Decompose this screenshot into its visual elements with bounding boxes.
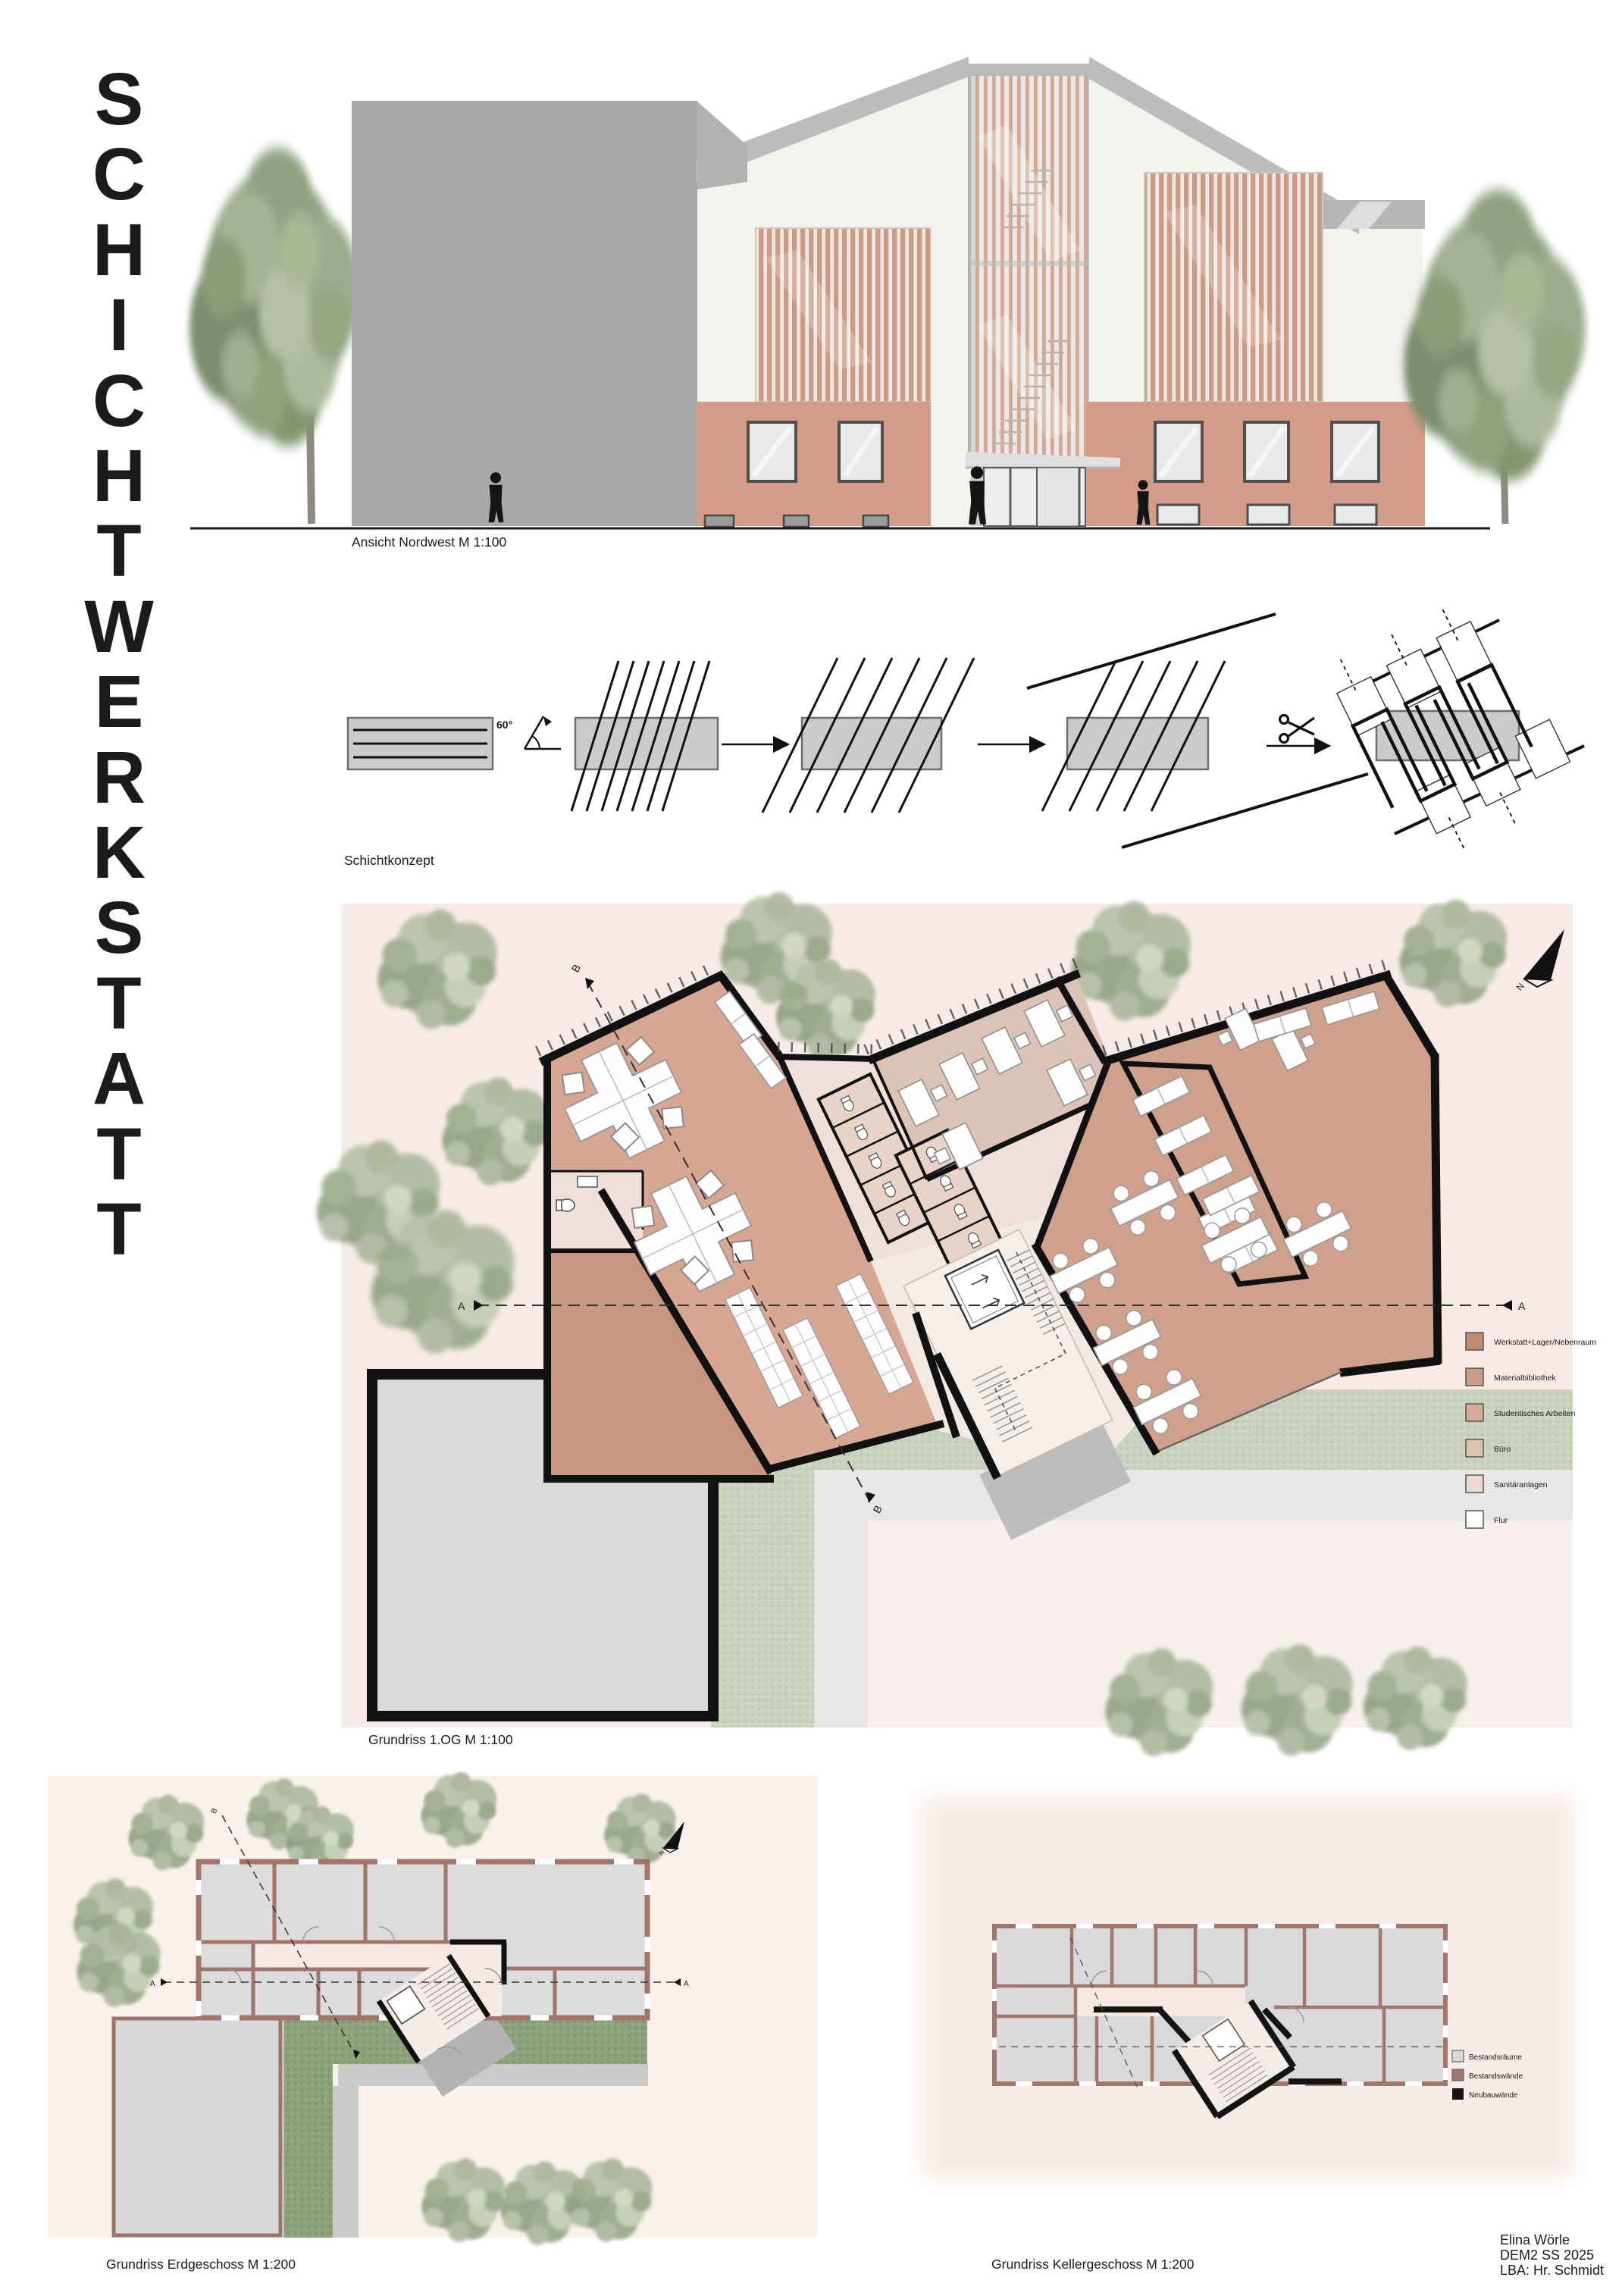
svg-text:H: H <box>92 208 146 291</box>
svg-text:C: C <box>92 133 146 215</box>
svg-text:A: A <box>684 1980 689 1988</box>
svg-text:A: A <box>1518 1300 1526 1312</box>
svg-text:A: A <box>458 1300 465 1312</box>
svg-text:K: K <box>92 811 146 894</box>
svg-text:Grundriss 1.OG M 1:100: Grundriss 1.OG M 1:100 <box>368 1732 513 1747</box>
svg-text:T: T <box>96 962 141 1045</box>
svg-text:LBA: Hr. Schmidt: LBA: Hr. Schmidt <box>1500 2263 1604 2278</box>
svg-text:Bestandswände: Bestandswände <box>1469 2072 1523 2081</box>
svg-text:Werkstatt+Lager/Nebenraum: Werkstatt+Lager/Nebenraum <box>1494 1338 1596 1347</box>
svg-text:E: E <box>95 660 144 743</box>
svg-text:W: W <box>84 585 154 668</box>
svg-text:Elina Wörle: Elina Wörle <box>1500 2232 1570 2247</box>
svg-text:Grundriss Erdgeschoss M 1:200: Grundriss Erdgeschoss M 1:200 <box>106 2257 296 2272</box>
svg-text:S: S <box>95 886 144 969</box>
svg-text:60°: 60° <box>496 719 512 731</box>
svg-text:Ansicht Nordwest M 1:100: Ansicht Nordwest M 1:100 <box>352 534 507 550</box>
svg-text:Büro: Büro <box>1494 1445 1511 1454</box>
svg-text:A: A <box>150 1980 155 1988</box>
svg-text:R: R <box>92 736 146 819</box>
svg-text:Studentisches Arbeiten: Studentisches Arbeiten <box>1494 1409 1576 1418</box>
svg-text:Neubauwände: Neubauwände <box>1469 2091 1518 2100</box>
svg-text:DEM2 SS 2025: DEM2 SS 2025 <box>1500 2247 1594 2263</box>
svg-text:I: I <box>109 283 130 366</box>
svg-text:C: C <box>92 359 146 442</box>
svg-text:A: A <box>92 1037 146 1120</box>
svg-text:Schichtkonzept: Schichtkonzept <box>344 853 434 868</box>
svg-text:Bestandsräume: Bestandsräume <box>1469 2053 1522 2062</box>
svg-text:H: H <box>92 434 146 517</box>
svg-text:S: S <box>95 58 144 140</box>
svg-text:Materialbibliothek: Materialbibliothek <box>1494 1374 1556 1383</box>
svg-text:T: T <box>96 1188 141 1270</box>
svg-text:T: T <box>96 1113 141 1195</box>
svg-text:T: T <box>96 509 141 592</box>
svg-text:Grundriss Kellergeschoss M 1:2: Grundriss Kellergeschoss M 1:200 <box>991 2257 1195 2272</box>
svg-text:Sanitäranlagen: Sanitäranlagen <box>1494 1480 1548 1489</box>
svg-text:Flur: Flur <box>1494 1516 1508 1525</box>
